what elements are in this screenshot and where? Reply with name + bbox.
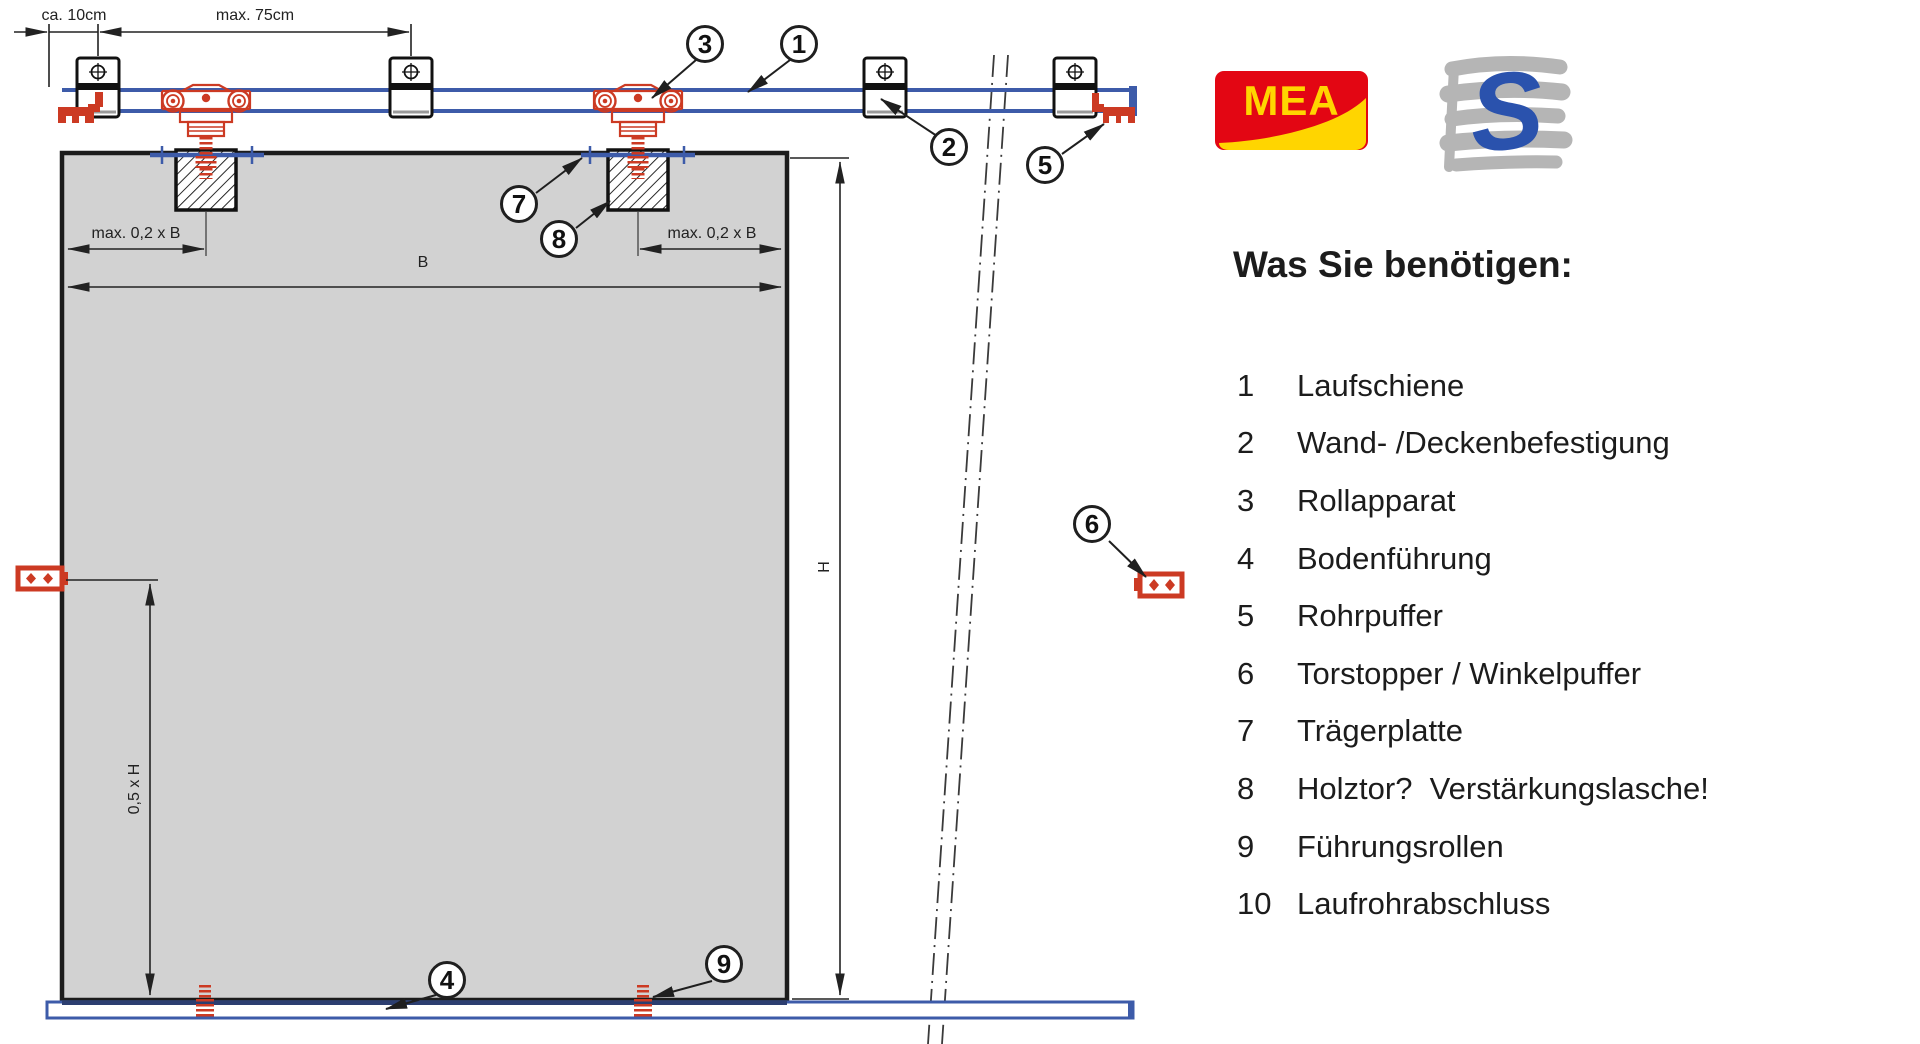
- callout-4: 4: [428, 961, 466, 999]
- wall-bracket: [390, 58, 432, 117]
- part-label: Trägerplatte: [1297, 713, 1463, 749]
- dim-ca10-label: ca. 10cm: [30, 7, 118, 25]
- section-line: [928, 55, 1008, 1044]
- parts-list: 1 Laufschiene 2 Wand- /Deckenbefestigung…: [1237, 357, 1709, 933]
- door-panel: [62, 153, 787, 1000]
- dimension-top: [14, 24, 411, 87]
- list-item: 5 Rohrpuffer: [1237, 587, 1709, 645]
- list-item: 3 Rollapparat: [1237, 472, 1709, 530]
- callout-1: 1: [780, 25, 818, 63]
- part-number: 4: [1237, 541, 1297, 577]
- part-label: Torstopper / Winkelpuffer: [1297, 656, 1641, 692]
- callout-7: 7: [500, 185, 538, 223]
- list-item: 4 Bodenführung: [1237, 530, 1709, 588]
- list-item: 6 Torstopper / Winkelpuffer: [1237, 645, 1709, 703]
- s-logo: S: [1438, 53, 1575, 180]
- dim-max75-label: max. 75cm: [195, 7, 315, 25]
- part-label: Rohrpuffer: [1297, 598, 1443, 634]
- part-label: Laufrohrabschluss: [1297, 886, 1550, 922]
- gate-stopper-left: [18, 568, 68, 589]
- part-number: 8: [1237, 771, 1297, 807]
- part-label: Bodenführung: [1297, 541, 1492, 577]
- list-item: 8 Holztor? Verstärkungslasche!: [1237, 760, 1709, 818]
- callout-6: 6: [1073, 505, 1111, 543]
- installation-diagram-page: ca. 10cm max. 75cm max. 0,2 x B max. 0,2…: [0, 0, 1920, 1044]
- part-number: 9: [1237, 829, 1297, 865]
- list-item: 7 Trägerplatte: [1237, 703, 1709, 761]
- gate-stopper-right: [1134, 574, 1182, 596]
- callout-5: 5: [1026, 146, 1064, 184]
- dim-02b-left-label: max. 0,2 x B: [76, 225, 196, 243]
- mea-logo-text: MEA: [1215, 77, 1368, 125]
- part-label: Holztor? Verstärkungslasche!: [1297, 771, 1709, 807]
- part-number: 1: [1237, 368, 1297, 404]
- dim-02b-right-label: max. 0,2 x B: [652, 225, 772, 243]
- reinforcement-plate: [608, 150, 668, 210]
- part-label: Wand- /Deckenbefestigung: [1297, 425, 1670, 461]
- parts-list-title: Was Sie benötigen:: [1233, 244, 1573, 286]
- dim-b-label: B: [403, 254, 443, 272]
- pipe-buffer-right: [1092, 93, 1135, 124]
- list-item: 2 Wand- /Deckenbefestigung: [1237, 415, 1709, 473]
- callout-2: 2: [930, 128, 968, 166]
- part-number: 10: [1237, 886, 1297, 922]
- part-number: 6: [1237, 656, 1297, 692]
- list-item: 9 Führungsrollen: [1237, 818, 1709, 876]
- callout-9: 9: [705, 945, 743, 983]
- dim-half-h-label: 0,5 x H: [126, 749, 144, 829]
- wall-bracket: [1054, 58, 1096, 117]
- part-label: Laufschiene: [1297, 368, 1464, 404]
- part-label: Führungsrollen: [1297, 829, 1504, 865]
- part-number: 2: [1237, 425, 1297, 461]
- part-label: Rollapparat: [1297, 483, 1456, 519]
- part-number: 7: [1237, 713, 1297, 749]
- reinforcement-plate: [176, 150, 236, 210]
- wall-bracket: [864, 58, 906, 117]
- list-item: 10 Laufrohrabschluss: [1237, 875, 1709, 933]
- callout-3: 3: [686, 25, 724, 63]
- callout-8: 8: [540, 220, 578, 258]
- s-logo-letter: S: [1433, 51, 1579, 173]
- dim-h-label: H: [816, 542, 834, 592]
- part-number: 5: [1237, 598, 1297, 634]
- mea-logo: MEA: [1215, 71, 1368, 150]
- list-item: 1 Laufschiene: [1237, 357, 1709, 415]
- part-number: 3: [1237, 483, 1297, 519]
